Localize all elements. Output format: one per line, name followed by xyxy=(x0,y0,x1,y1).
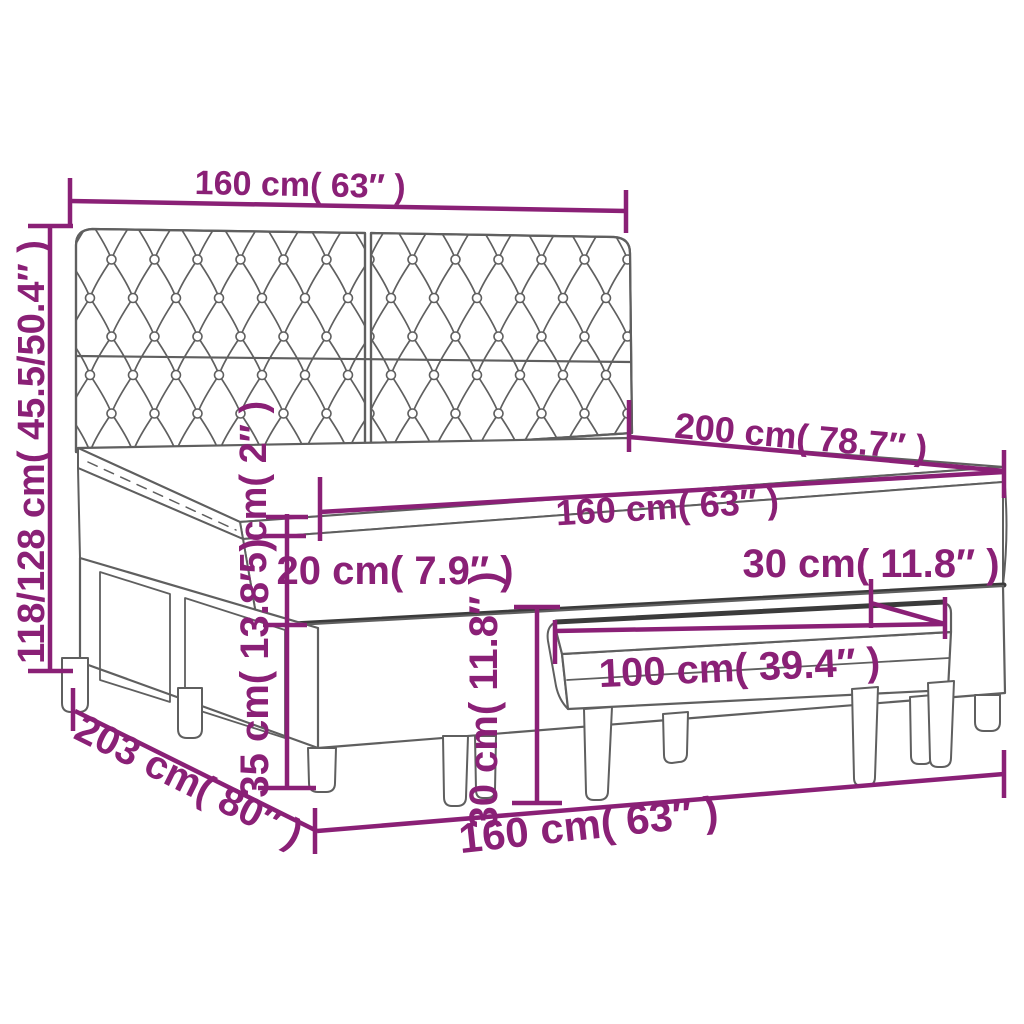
label-headboard-width: 160 cm( 63″ ) xyxy=(194,164,406,206)
label-bed-height: 118/128 cm( 45.5/50.4″ ) xyxy=(11,240,53,664)
product-dimension-diagram: 160 cm( 63″ ) 118/128 cm( 45.5/50.4″ ) 2… xyxy=(0,0,1024,1024)
headboard xyxy=(76,229,632,452)
bed-diagram-svg: 160 cm( 63″ ) 118/128 cm( 45.5/50.4″ ) 2… xyxy=(0,0,1024,1024)
label-bench-depth: 30 cm( 11.8″ ) xyxy=(742,542,999,586)
bed-drawing xyxy=(62,229,1007,806)
label-bench-height: 30 cm( 11.8″ ) xyxy=(462,571,506,828)
label-base-leg-height: 35 cm( 13.8″ ) xyxy=(233,538,277,797)
